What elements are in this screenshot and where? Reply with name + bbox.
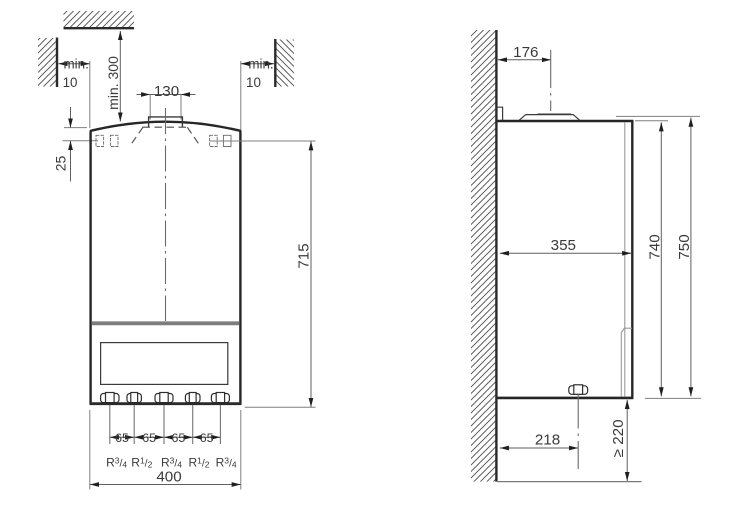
svg-text:400: 400 — [156, 469, 181, 486]
svg-text:65: 65 — [200, 431, 214, 445]
svg-text:R1/2: R1/2 — [188, 456, 209, 470]
svg-text:715: 715 — [295, 243, 312, 268]
svg-text:65: 65 — [142, 431, 156, 445]
svg-text:min.: min. — [64, 56, 89, 71]
svg-text:65: 65 — [172, 431, 186, 445]
svg-text:130: 130 — [154, 83, 179, 100]
svg-text:355: 355 — [551, 237, 576, 254]
svg-text:R1/2: R1/2 — [131, 456, 152, 470]
svg-text:R3/4: R3/4 — [161, 456, 182, 470]
svg-text:10: 10 — [246, 75, 261, 90]
svg-text:176: 176 — [513, 44, 538, 61]
svg-text:740: 740 — [646, 234, 663, 259]
svg-text:65: 65 — [115, 431, 129, 445]
svg-text:218: 218 — [535, 431, 560, 448]
svg-text:≥ 220: ≥ 220 — [610, 419, 627, 457]
svg-text:min.: min. — [248, 56, 273, 71]
svg-text:750: 750 — [676, 234, 693, 259]
svg-text:R3/4: R3/4 — [216, 456, 237, 470]
svg-text:R3/4: R3/4 — [106, 456, 127, 470]
svg-text:25: 25 — [52, 156, 68, 172]
svg-text:min. 300: min. 300 — [105, 56, 121, 110]
svg-text:10: 10 — [63, 75, 78, 90]
